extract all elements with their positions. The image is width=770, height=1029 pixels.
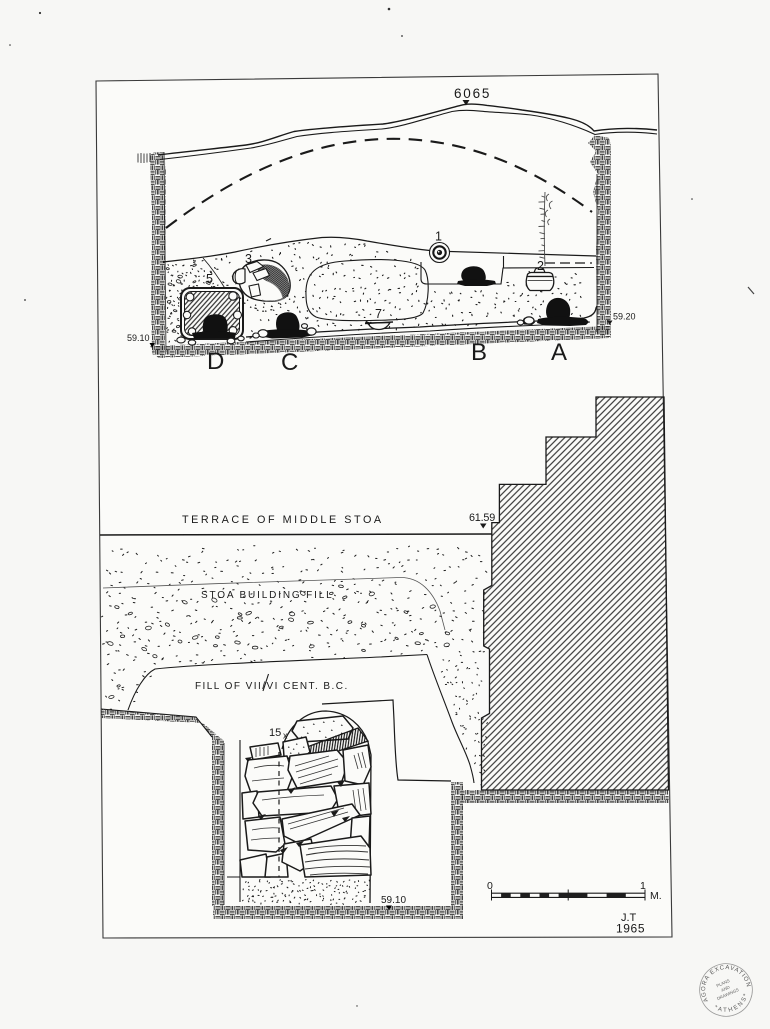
svg-text:x: x <box>283 731 288 741</box>
svg-text:3: 3 <box>245 252 252 266</box>
svg-text:0: 0 <box>487 880 493 892</box>
svg-text:1: 1 <box>435 230 442 244</box>
svg-text:A: A <box>551 339 567 366</box>
svg-text:59.10: 59.10 <box>127 333 150 343</box>
svg-text:1965: 1965 <box>616 922 645 936</box>
svg-text:7: 7 <box>375 307 382 321</box>
svg-text:1: 1 <box>640 880 646 892</box>
svg-text:6065: 6065 <box>454 86 491 101</box>
svg-text:15: 15 <box>269 727 281 739</box>
svg-text:B: B <box>471 339 487 366</box>
svg-text:59.20: 59.20 <box>613 312 636 322</box>
svg-text:M.: M. <box>650 890 662 902</box>
svg-text:5: 5 <box>206 272 213 286</box>
svg-text:59.10: 59.10 <box>381 895 406 906</box>
svg-text:2: 2 <box>537 259 544 273</box>
svg-text:FILL OF VII/VI CENT. B.C.: FILL OF VII/VI CENT. B.C. <box>195 681 349 692</box>
svg-text:TERRACE OF MIDDLE STOA: TERRACE OF MIDDLE STOA <box>182 514 384 526</box>
svg-text:D: D <box>207 348 224 375</box>
svg-text:C: C <box>281 349 298 376</box>
svg-text:STOA BUILDING FILL: STOA BUILDING FILL <box>201 590 334 601</box>
